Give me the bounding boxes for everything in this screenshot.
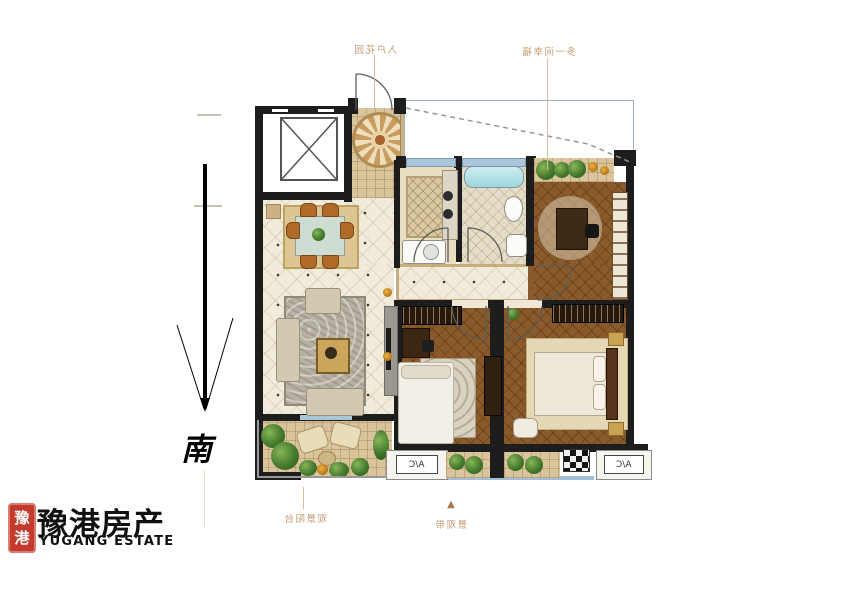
floor-plan: A/C A/C	[255, 70, 655, 490]
entry-garden-label: 入户花园	[340, 42, 410, 56]
company-seal: 豫港	[8, 503, 36, 553]
landscape-label: 景观带	[423, 517, 479, 531]
tick-mark-top	[197, 114, 221, 116]
view-balcony-label: 观景阳台	[272, 511, 338, 525]
extra-room-label: 多一间幸福	[510, 44, 588, 58]
company-name-en: YUGANG ESTATE	[39, 534, 174, 549]
door-arcs	[255, 70, 655, 490]
compass-leader-line	[204, 470, 205, 526]
triangle-marker: ▲	[444, 499, 458, 510]
entry-garden-leader	[374, 55, 375, 108]
page-canvas: 南	[0, 0, 861, 600]
view-balcony-leader	[303, 487, 304, 509]
south-arrow-icon	[155, 158, 255, 420]
south-label: 南	[181, 424, 212, 469]
extra-room-leader	[547, 58, 548, 170]
